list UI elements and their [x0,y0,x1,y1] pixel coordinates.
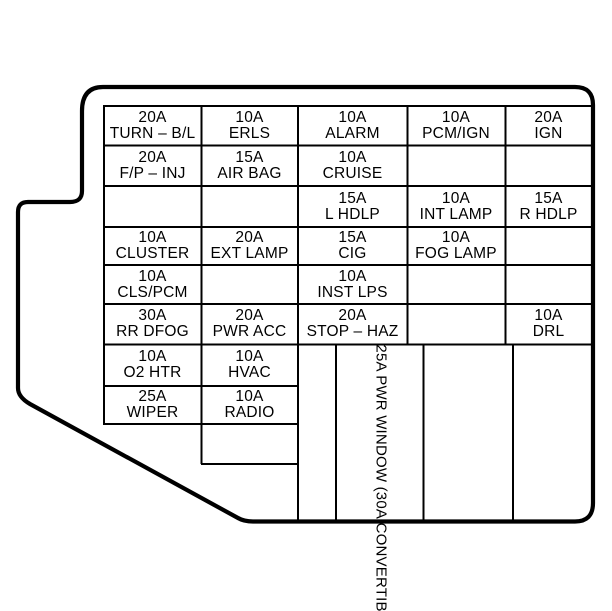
fuse-amp: 20A [235,308,263,324]
fuse-amp: 30A [138,308,166,324]
fuse-amp: 10A [138,269,166,285]
fuse-label: PWR ACC [213,324,287,340]
fuse-label: DRL [533,324,565,340]
fuse-label: L HDLP [325,207,380,223]
fuse-amp: 25A [372,344,389,370]
fuse-cell-pcm-ign: 10A PCM/IGN [407,106,505,145]
fuse-label: AIR BAG [217,166,281,182]
fuse-cell-hvac: 10A HVAC [201,344,298,386]
fuse-amp: 10A [534,308,562,324]
fuse-label: CLS/PCM [117,285,187,301]
fuse-label: PWR WINDOW [372,375,389,482]
fuse-label: RR DFOG [116,324,189,340]
fuse-cell-cluster: 10A CLUSTER [104,227,201,265]
fuse-label: CRUISE [323,166,383,182]
fuse-amp: 10A [235,389,263,405]
fuse-cell-pwr-window: 25A PWR WINDOW (30A CONVERTIBLE) [336,344,423,520]
fuse-amp: 15A [235,150,263,166]
fuse-cell-drl: 10A DRL [505,304,592,344]
fuse-label: FOG LAMP [415,246,497,262]
fuse-amp: 10A [442,191,470,207]
fuse-cell-pwr-acc: 20A PWR ACC [201,304,298,344]
fuse-label: INST LPS [317,285,387,301]
fuse-cell-l-hdlp: 15A L HDLP [298,186,407,227]
fuse-note: (30A CONVERTIBLE) [372,486,389,611]
fuse-label: PCM/IGN [422,126,490,142]
fuse-amp: 15A [534,191,562,207]
fuse-label: IGN [534,126,562,142]
fuse-label: ALARM [325,126,379,142]
fuse-cell-inst-lps: 10A INST LPS [298,265,407,304]
fuse-cell-wiper: 25A WIPER [104,386,201,424]
fuse-cell-cruise: 10A CRUISE [298,145,407,186]
fuse-label: CIG [338,246,366,262]
fuse-label: STOP – HAZ [307,324,399,340]
fuse-label: HVAC [228,365,271,381]
fuse-cell-ext-lamp: 20A EXT LAMP [201,227,298,265]
fuse-box-diagram: 20A TURN – B/L 10A ERLS 10A ALARM 10A PC… [0,0,612,611]
fuse-cell-pwr-window-text: 25A PWR WINDOW (30A CONVERTIBLE) [371,344,388,520]
fuse-cell-fog-lamp: 10A FOG LAMP [407,227,505,265]
fuse-label: ERLS [229,126,270,142]
fuse-amp: 15A [338,191,366,207]
fuse-label: INT LAMP [420,207,493,223]
fuse-cell-cls-pcm: 10A CLS/PCM [104,265,201,304]
fuse-label: R HDLP [519,207,577,223]
fuse-amp: 20A [138,110,166,126]
fuse-amp: 15A [338,230,366,246]
fuse-cell-fp-inj: 20A F/P – INJ [104,145,201,186]
fuse-label: F/P – INJ [119,166,185,182]
fuse-amp: 10A [338,269,366,285]
fuse-label: WIPER [127,405,179,421]
fuse-cell-alarm: 10A ALARM [298,106,407,145]
fuse-amp: 20A [338,308,366,324]
fuse-amp: 10A [338,150,366,166]
fuse-cell-ign: 20A IGN [505,106,592,145]
fuse-amp: 20A [138,150,166,166]
fuse-amp: 20A [534,110,562,126]
fuse-label: CLUSTER [116,246,190,262]
fuse-cell-turn-bl: 20A TURN – B/L [104,106,201,145]
fuse-amp: 20A [235,230,263,246]
fuse-amp: 10A [338,110,366,126]
fuse-label: RADIO [224,405,274,421]
fuse-amp: 10A [138,230,166,246]
fuse-cell-rr-dfog: 30A RR DFOG [104,304,201,344]
fuse-label: O2 HTR [123,365,181,381]
fuse-amp: 10A [235,110,263,126]
fuse-label: EXT LAMP [211,246,289,262]
fuse-cell-stop-haz: 20A STOP – HAZ [298,304,407,344]
fuse-label: TURN – B/L [110,126,196,142]
fuse-cell-o2-htr: 10A O2 HTR [104,344,201,386]
fuse-cell-int-lamp: 10A INT LAMP [407,186,505,227]
fuse-amp: 10A [442,110,470,126]
fuse-cell-radio: 10A RADIO [201,386,298,424]
fuse-cell-air-bag: 15A AIR BAG [201,145,298,186]
fuse-amp: 10A [235,349,263,365]
fuse-amp: 10A [442,230,470,246]
fuse-amp: 25A [138,389,166,405]
fuse-cell-erls: 10A ERLS [201,106,298,145]
fuse-cell-r-hdlp: 15A R HDLP [505,186,592,227]
fuse-amp: 10A [138,349,166,365]
fuse-cell-cig: 15A CIG [298,227,407,265]
